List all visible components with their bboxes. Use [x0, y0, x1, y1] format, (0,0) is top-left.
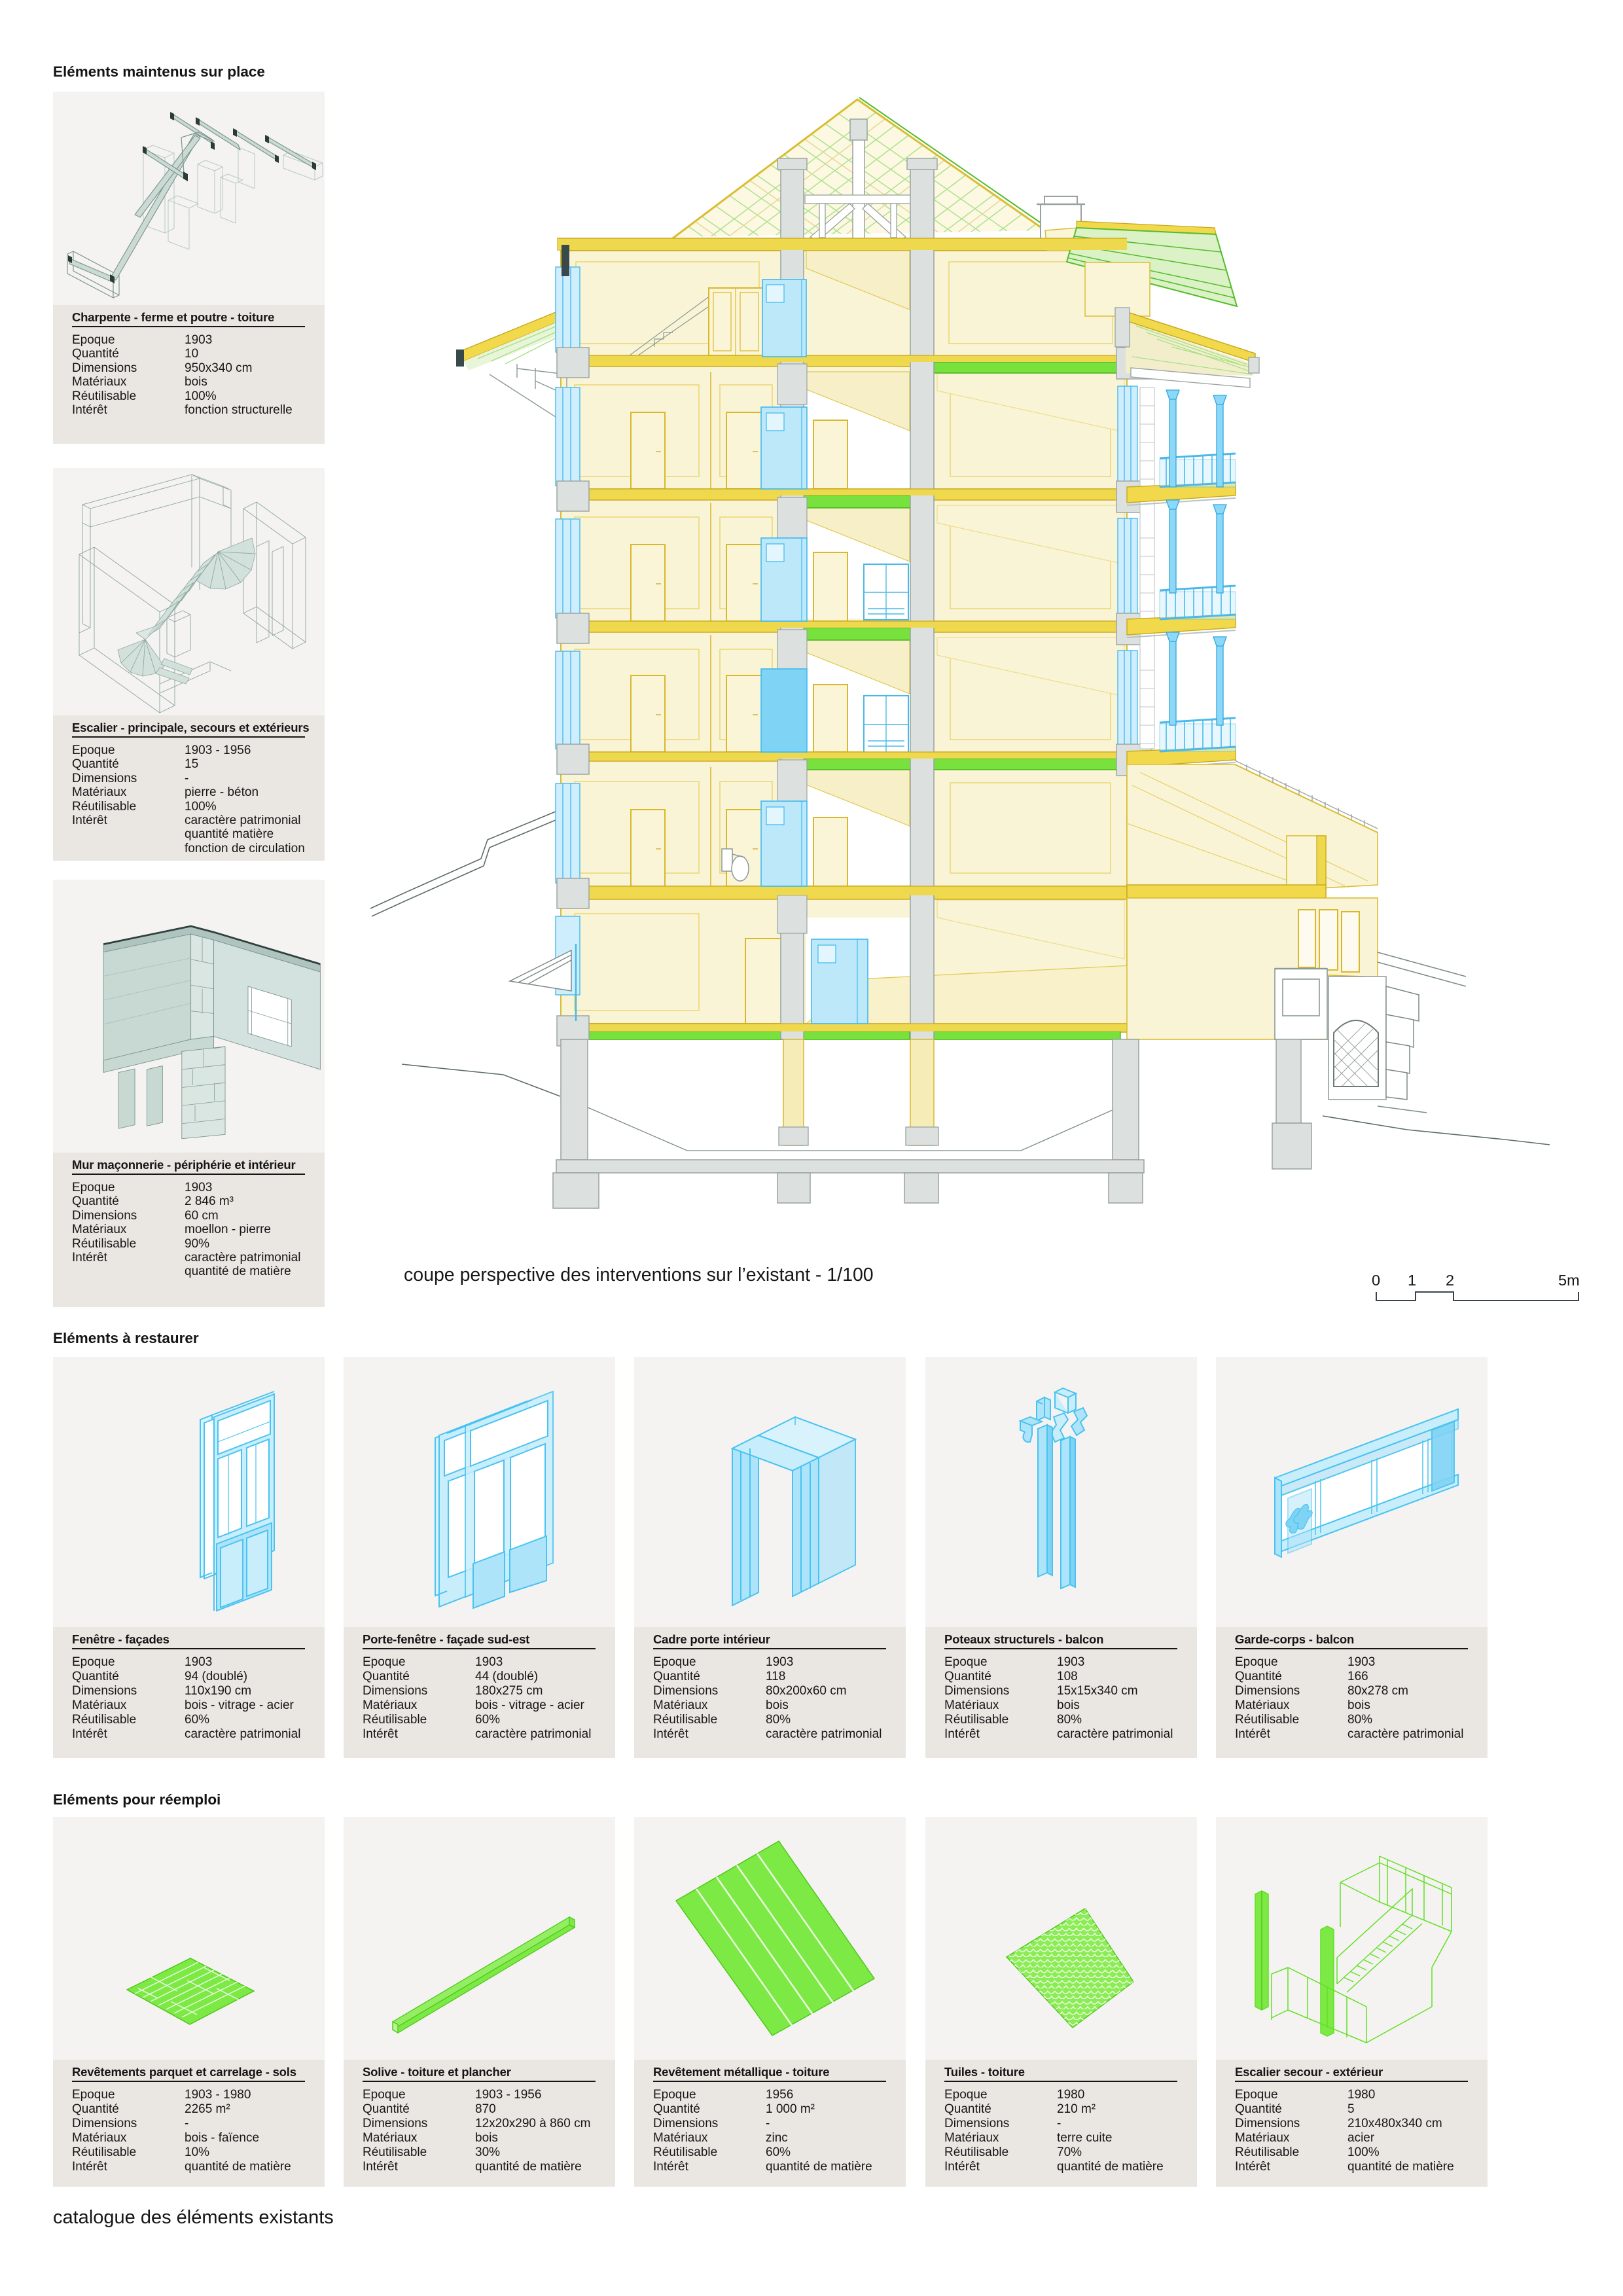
svg-text:1: 1	[1408, 1272, 1416, 1289]
svg-text:2: 2	[1446, 1272, 1454, 1289]
svg-text:0: 0	[1372, 1272, 1380, 1289]
svg-text:5m: 5m	[1558, 1272, 1580, 1289]
